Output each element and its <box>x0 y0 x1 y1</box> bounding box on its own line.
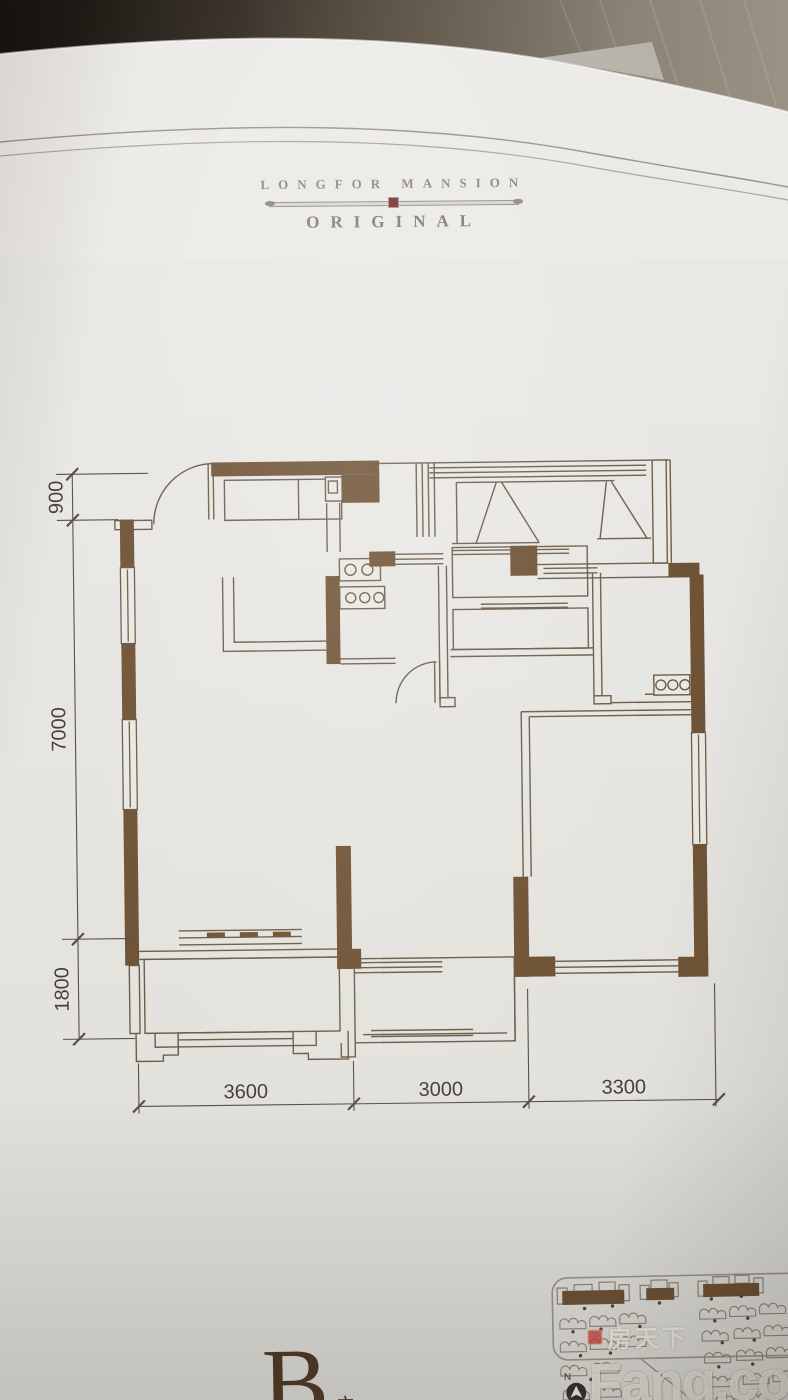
dimension-ticks <box>66 460 725 1113</box>
unit-type-block: B 户型 <box>261 1335 329 1400</box>
north-label: N <box>564 1372 571 1383</box>
plan-linework <box>114 458 695 1062</box>
dim-left-7000: 7000 <box>48 707 71 752</box>
balcony <box>129 929 349 1062</box>
watermark-english: Fang.com <box>588 1347 788 1400</box>
dim-bottom-3300: 3300 <box>601 1076 646 1099</box>
dim-left-900: 900 <box>45 481 67 515</box>
dim-left-1800: 1800 <box>51 967 74 1012</box>
fang-logo-icon <box>587 1330 602 1345</box>
fang-watermark: 房天下 Fang.com <box>587 1316 788 1400</box>
floor-plan-drawing: 900 7000 1800 3600 3000 3300 <box>45 456 725 1114</box>
exterior-windows <box>120 561 706 852</box>
bathroom-vanity <box>654 675 690 695</box>
plan-walls <box>119 457 708 984</box>
bay-window <box>340 957 515 1057</box>
floor-plan-svg: 900 7000 1800 3600 3000 3300 <box>0 0 788 1400</box>
unit-type-suffix: 户型 <box>334 1389 359 1400</box>
entry-door-arc <box>153 464 214 525</box>
dim-bottom-3600: 3600 <box>223 1081 268 1104</box>
dim-bottom-3000: 3000 <box>418 1078 463 1101</box>
brochure-photo-page: LONGFOR MANSION ORIGINAL <box>0 0 788 1400</box>
site-highlight-buildings <box>557 1275 763 1305</box>
unit-type-letter: B <box>261 1335 329 1400</box>
kitchen-door-arc <box>396 662 437 703</box>
